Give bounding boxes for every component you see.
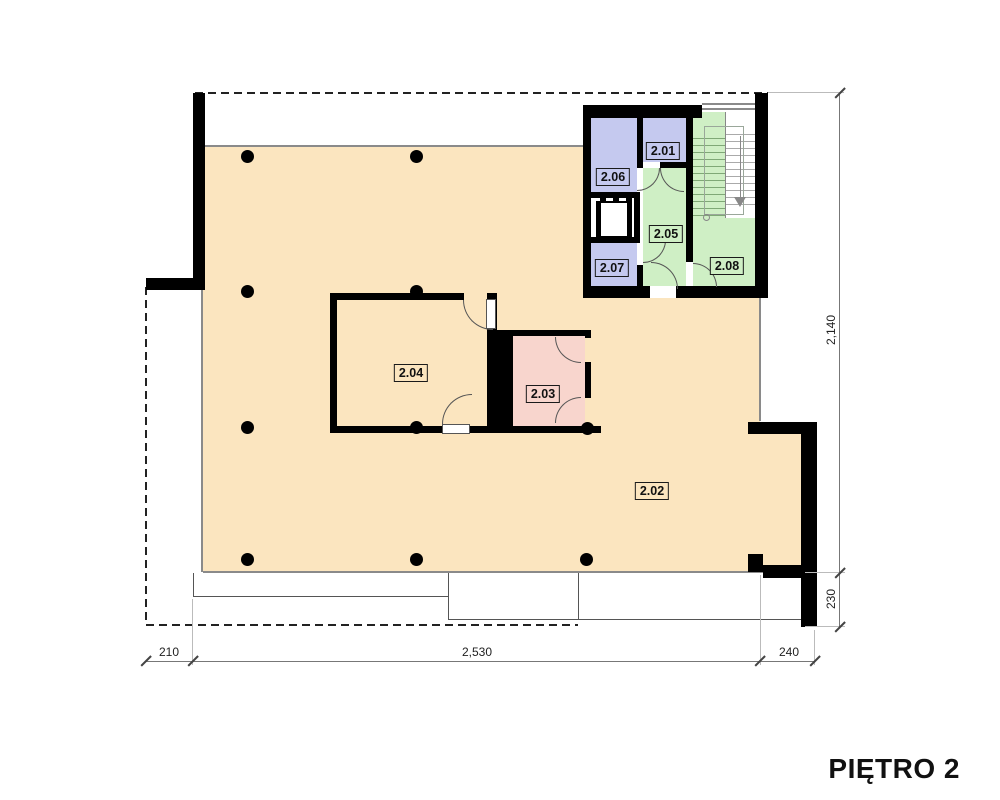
glass-line-left [201,290,203,572]
column-dot [410,285,423,298]
wall-206-201 [637,118,643,168]
wall-203-top [513,330,587,336]
room-fill-202-east [583,297,760,573]
wall-core-bottom-a [583,286,650,298]
stair-window-line-2 [702,108,755,110]
wall-204-left [330,293,337,433]
stair-down-arrow [734,197,746,207]
wall-core-left [583,105,591,297]
dim-label-240: 240 [779,645,799,659]
roof-dashed-top [195,92,768,94]
wall-extension-bottom [763,565,803,578]
terrace-divider-line [578,573,579,620]
wall-204-top-a [330,293,464,300]
column-dot [580,553,593,566]
elevator-jamb-3 [626,192,632,201]
wall-duct [497,330,513,426]
stair-window-line-1 [702,103,755,105]
terrace-outline-left [193,573,448,597]
wall-extension-stub [748,554,763,572]
wall-core-top [583,105,702,118]
door-opening-208 [686,262,693,286]
wall-203-right-a [585,330,591,338]
wall-left [193,93,205,290]
glass-line-top [203,145,583,147]
column-dot [241,150,254,163]
wall-extension-right [801,422,817,627]
roof-dashed-bottom [146,624,578,626]
column-dot [410,553,423,566]
floor-plan: 2.01 2.06 2.07 2.05 2.08 2.04 2.03 2.02 … [0,0,1000,800]
wall-stairs-left [686,118,693,262]
elevator-jamb-1 [600,192,606,201]
wall-left-stub [146,278,205,290]
elevator-jamb-2 [613,192,619,201]
extension-line [760,575,761,665]
elevator-car [596,201,632,238]
wall-204-bottom-a [330,426,442,433]
wall-203-right-b [585,362,591,398]
dim-label-230: 230 [824,589,838,609]
door-leaf-204-bottom [442,424,470,434]
room-fill-202-extension [760,432,803,565]
dimension-line-bottom [146,661,815,662]
room-label-202: 2.02 [635,482,669,500]
room-label-208: 2.08 [710,257,744,275]
dim-label-210: 210 [159,645,179,659]
page-title: PIĘTRO 2 [770,753,960,785]
wall-building-right [755,93,768,297]
wall-207-right [637,265,643,286]
room-label-201: 2.01 [646,142,680,160]
room-label-205: 2.05 [649,225,683,243]
column-dot [241,285,254,298]
room-label-207: 2.07 [595,259,629,277]
roof-dashed-left [145,287,147,625]
column-dot [410,421,423,434]
dimension-line-right [839,93,840,627]
dim-label-2530: 2,530 [462,645,492,659]
column-dot [410,150,423,163]
column-dot [581,422,594,435]
dim-label-2140: 2,140 [824,315,838,345]
room-label-206: 2.06 [596,168,630,186]
wall-elevator-right [634,198,640,237]
extension-line [768,92,844,93]
extension-line [192,599,193,665]
column-dot [241,421,254,434]
glass-line-right [759,297,761,421]
column-dot [241,553,254,566]
room-label-204: 2.04 [394,364,428,382]
stair-arrow-stem [740,136,741,198]
wall-core-bottom-b [676,286,768,298]
stair-newel-circle [703,214,710,221]
terrace-outline-right [448,573,802,620]
room-label-203: 2.03 [526,385,560,403]
